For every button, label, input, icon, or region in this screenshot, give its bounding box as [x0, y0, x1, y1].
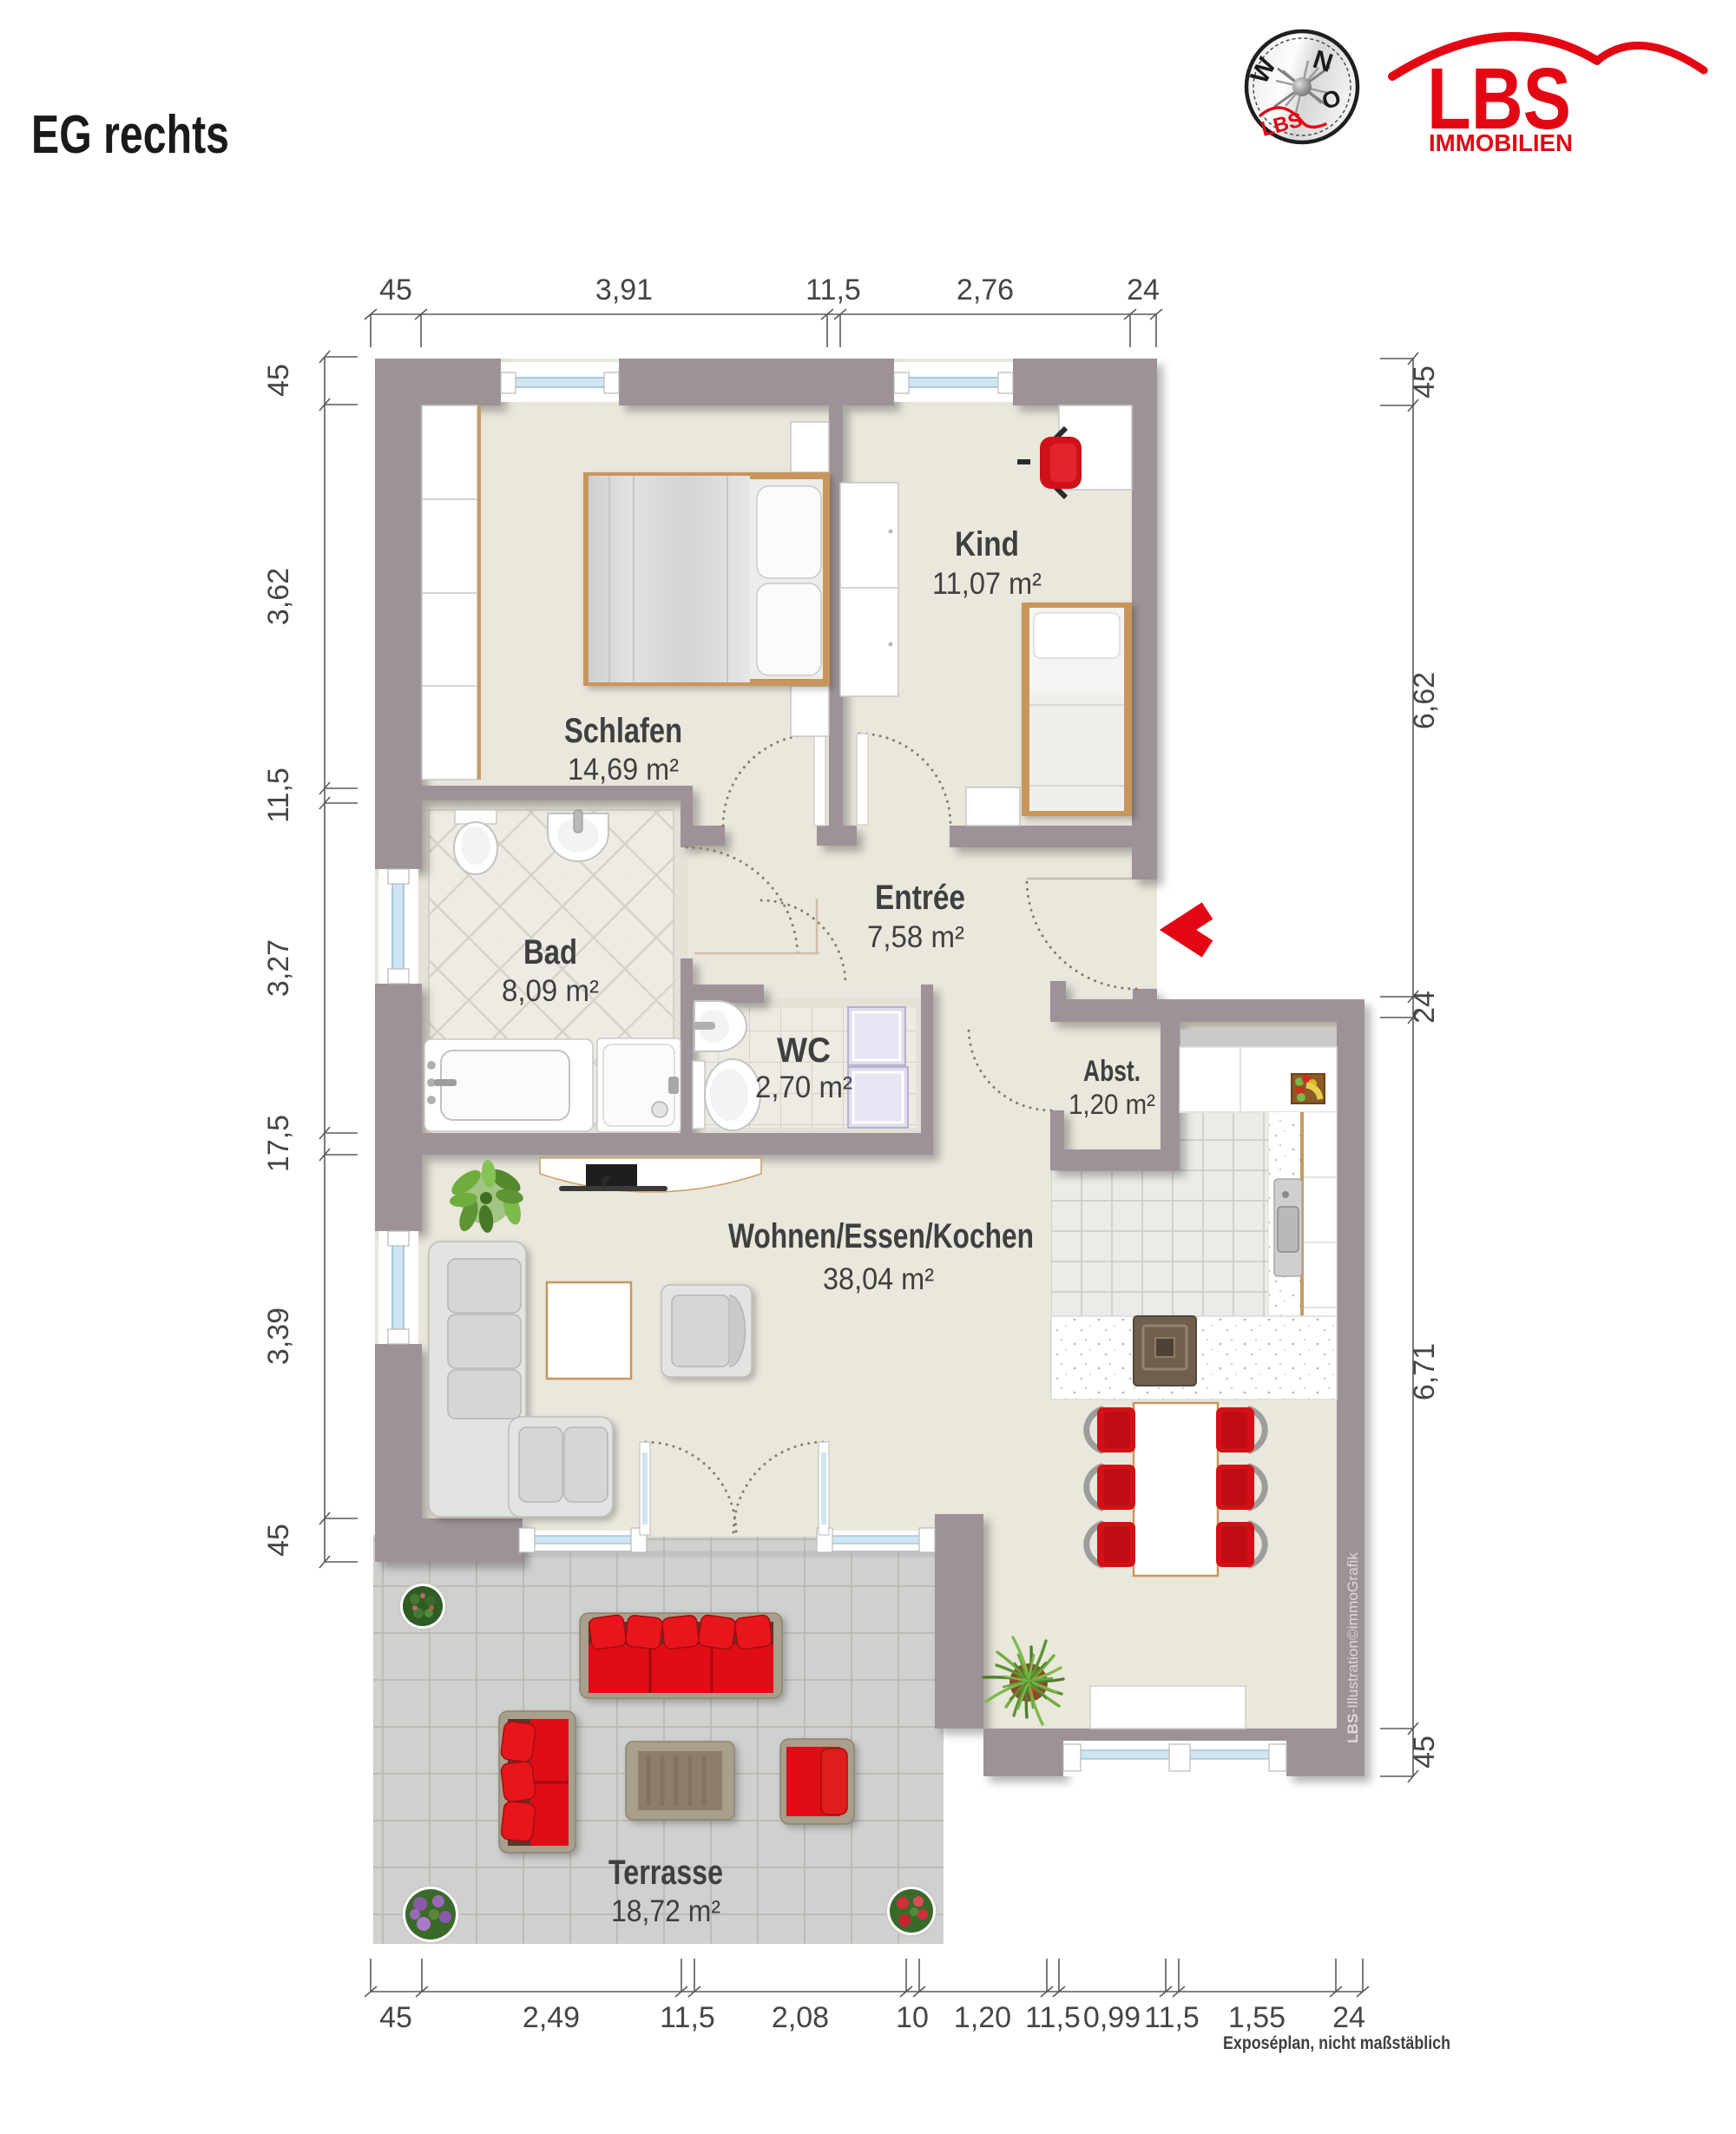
svg-text:11,5: 11,5 [1144, 2001, 1200, 2034]
svg-text:2,76: 2,76 [957, 273, 1014, 306]
svg-text:45: 45 [262, 1524, 295, 1557]
svg-text:45: 45 [379, 2001, 412, 2034]
svg-text:Terrasse: Terrasse [608, 1854, 723, 1892]
svg-text:1,55: 1,55 [1228, 2001, 1286, 2034]
svg-text:Entrée: Entrée [875, 879, 965, 917]
svg-text:1,20 m²: 1,20 m² [1069, 1089, 1155, 1120]
svg-text:24: 24 [1332, 2001, 1365, 2034]
svg-text:2,49: 2,49 [523, 2001, 580, 2034]
svg-text:17,5: 17,5 [262, 1115, 295, 1172]
svg-text:3,62: 3,62 [262, 568, 295, 625]
svg-text:Wohnen/Essen/Kochen: Wohnen/Essen/Kochen [728, 1217, 1034, 1255]
svg-text:Exposéplan, nicht maßstäblich: Exposéplan, nicht maßstäblich [1223, 2033, 1450, 2053]
svg-text:Schlafen: Schlafen [564, 712, 682, 750]
svg-text:45: 45 [262, 364, 295, 397]
svg-text:14,69 m²: 14,69 m² [568, 753, 679, 787]
svg-text:Kind: Kind [955, 525, 1019, 563]
svg-text:EG rechts: EG rechts [31, 105, 229, 165]
svg-text:1,20: 1,20 [954, 2001, 1011, 2034]
svg-text:6,71: 6,71 [1408, 1343, 1441, 1400]
svg-text:45: 45 [1408, 366, 1441, 398]
svg-text:Bad: Bad [523, 933, 577, 971]
svg-text:7,58 m²: 7,58 m² [867, 920, 964, 954]
svg-text:IMMOBILIEN: IMMOBILIEN [1429, 129, 1573, 156]
svg-text:6,62: 6,62 [1408, 672, 1441, 729]
svg-text:10: 10 [896, 2001, 929, 2034]
svg-text:Abst.: Abst. [1083, 1055, 1141, 1088]
svg-text:11,5: 11,5 [262, 767, 295, 823]
svg-text:2,08: 2,08 [772, 2001, 829, 2034]
svg-text:11,5: 11,5 [660, 2001, 715, 2034]
svg-text:11,5: 11,5 [806, 273, 861, 306]
svg-text:8,09 m²: 8,09 m² [502, 974, 599, 1008]
svg-text:45: 45 [1408, 1736, 1441, 1768]
svg-text:38,04 m²: 38,04 m² [823, 1262, 934, 1296]
svg-text:0,99: 0,99 [1083, 2001, 1141, 2034]
svg-text:11,5: 11,5 [1025, 2001, 1081, 2034]
svg-text:2,70 m²: 2,70 m² [755, 1070, 852, 1104]
svg-text:24: 24 [1127, 273, 1160, 306]
svg-text:3,39: 3,39 [262, 1307, 295, 1365]
svg-text:18,72 m²: 18,72 m² [611, 1894, 720, 1928]
svg-text:24: 24 [1408, 991, 1441, 1024]
svg-text:3,27: 3,27 [262, 939, 295, 997]
svg-text:WC: WC [777, 1031, 831, 1070]
svg-text:3,91: 3,91 [595, 273, 653, 306]
svg-text:11,07 m²: 11,07 m² [932, 567, 1042, 601]
svg-text:LBS-Illustration©immoGrafik: LBS-Illustration©immoGrafik [1345, 1551, 1361, 1743]
svg-text:45: 45 [379, 273, 412, 306]
